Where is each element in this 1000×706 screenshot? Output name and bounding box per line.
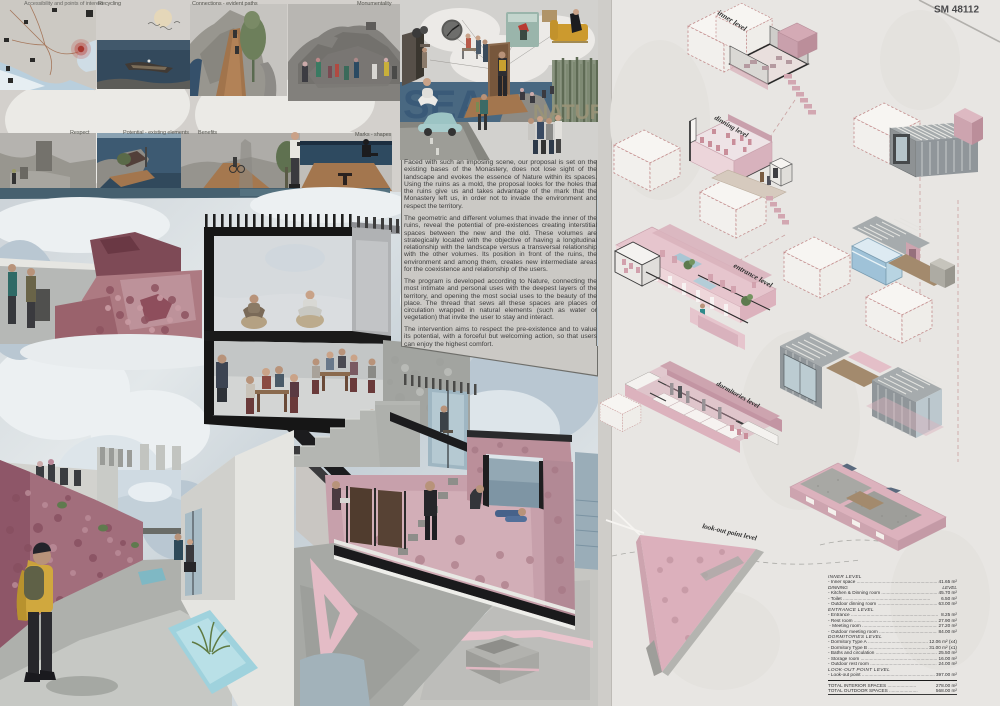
svg-text:SM 48112: SM 48112 <box>934 5 979 16</box>
svg-text:look-out point level: look-out point level <box>702 522 758 542</box>
svg-text:NATURE: NATURE <box>533 101 600 124</box>
